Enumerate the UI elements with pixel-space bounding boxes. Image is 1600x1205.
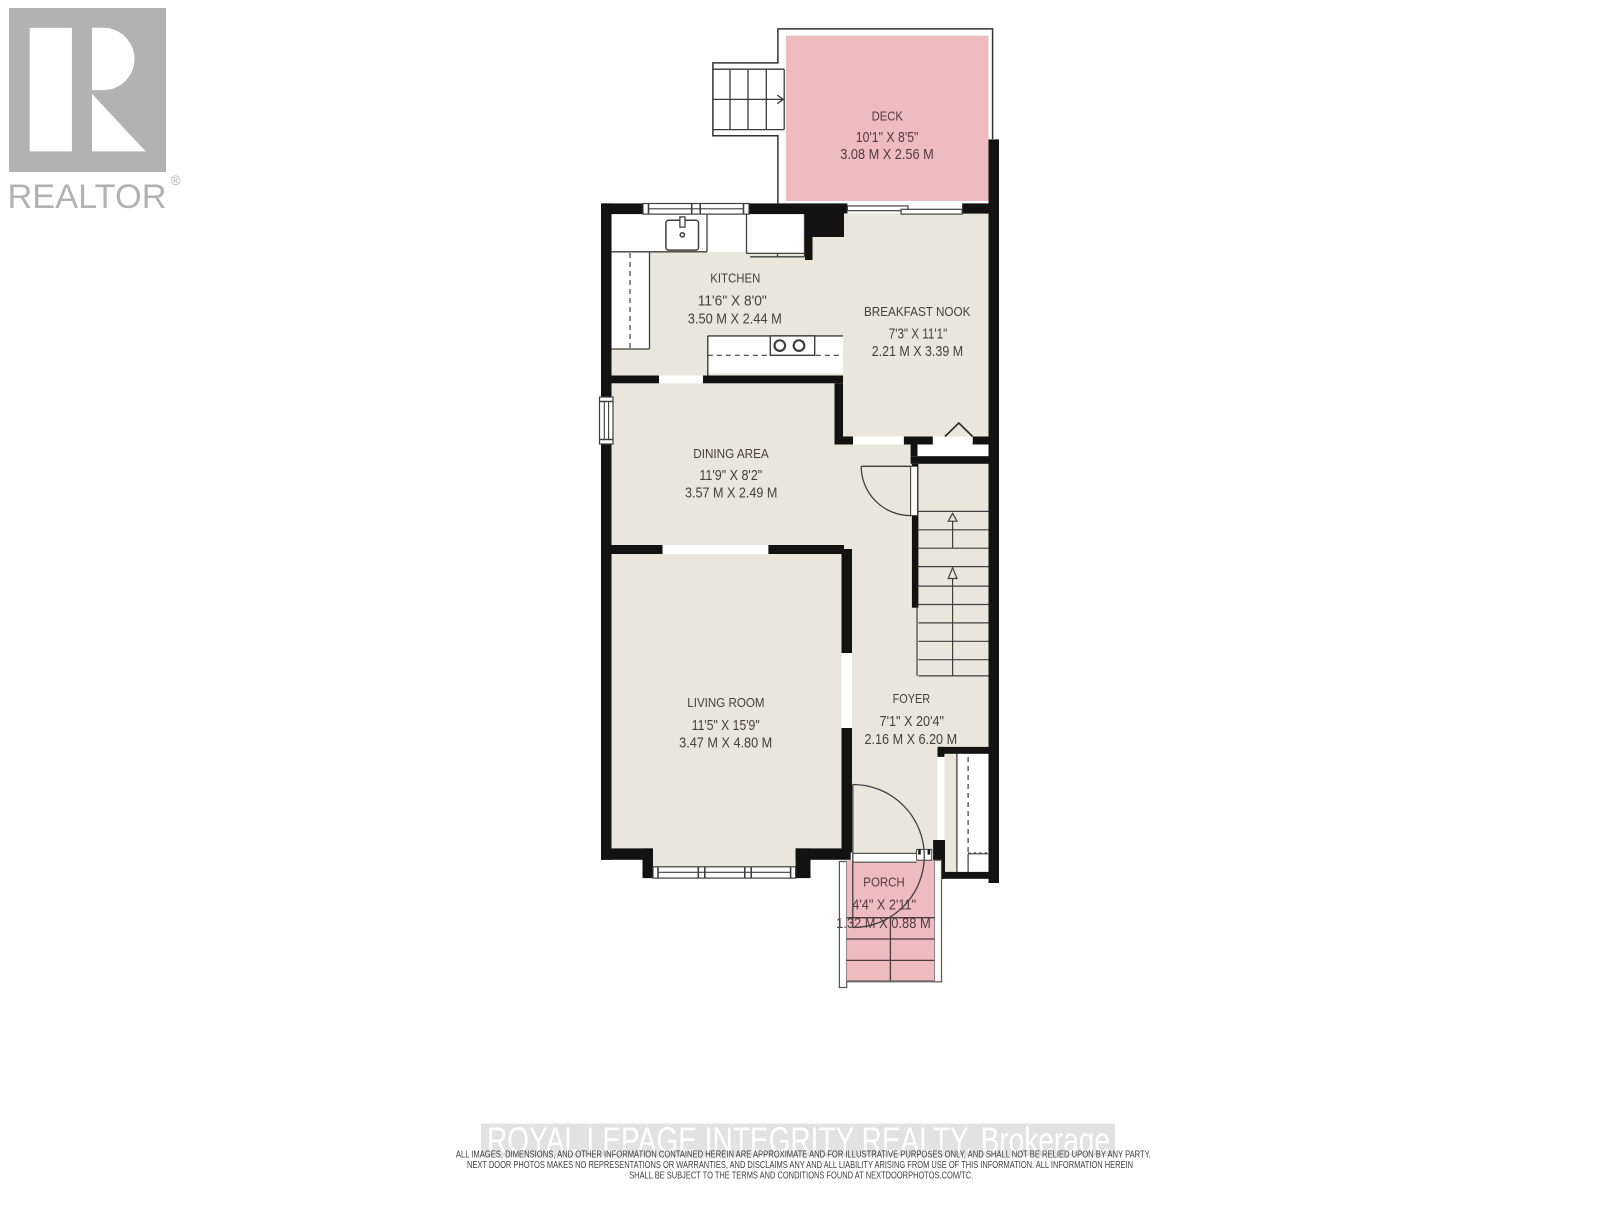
svg-text:BREAKFAST NOOK: BREAKFAST NOOK — [864, 304, 971, 319]
svg-text:NEXT DOOR PHOTOS MAKES NO REPR: NEXT DOOR PHOTOS MAKES NO REPRESENTATION… — [467, 1160, 1133, 1171]
svg-text:2.21 M X 3.39 M: 2.21 M X 3.39 M — [872, 344, 963, 360]
svg-text:KITCHEN: KITCHEN — [710, 270, 760, 285]
svg-text:LIVING ROOM: LIVING ROOM — [687, 695, 764, 710]
svg-text:3.57 M X 2.49 M: 3.57 M X 2.49 M — [685, 486, 777, 502]
svg-text:DINING AREA: DINING AREA — [693, 446, 769, 461]
svg-text:3.47 M X 4.80 M: 3.47 M X 4.80 M — [679, 735, 772, 751]
svg-text:3.50 M X 2.44 M: 3.50 M X 2.44 M — [688, 312, 782, 328]
svg-text:7'3" X 11'1": 7'3" X 11'1" — [889, 327, 948, 343]
svg-text:11'5" X 15'9": 11'5" X 15'9" — [692, 718, 760, 734]
svg-text:11'9" X 8'2": 11'9" X 8'2" — [699, 468, 762, 484]
svg-text:4'4" X 2'11": 4'4" X 2'11" — [852, 897, 916, 913]
svg-text:11'6" X 8'0": 11'6" X 8'0" — [698, 293, 767, 309]
svg-text:10'1" X 8'5": 10'1" X 8'5" — [856, 130, 919, 146]
svg-text:3.08 M X 2.56 M: 3.08 M X 2.56 M — [840, 147, 934, 163]
svg-text:REALTOR: REALTOR — [8, 178, 167, 216]
svg-text:7'1" X 20'4": 7'1" X 20'4" — [880, 714, 945, 730]
svg-text:2.16 M X 6.20 M: 2.16 M X 6.20 M — [865, 732, 958, 748]
svg-text:®: ® — [171, 173, 181, 188]
svg-text:ALL IMAGES, DIMENSIONS, AND OT: ALL IMAGES, DIMENSIONS, AND OTHER INFORM… — [456, 1149, 1151, 1160]
svg-text:1.32 M X 0.88 M: 1.32 M X 0.88 M — [836, 916, 931, 932]
svg-text:FOYER: FOYER — [893, 691, 931, 706]
svg-text:SHALL BE SUBJECT TO THE TERMS: SHALL BE SUBJECT TO THE TERMS AND CONDIT… — [629, 1170, 973, 1181]
svg-text:PORCH: PORCH — [863, 875, 904, 890]
svg-text:DECK: DECK — [872, 108, 904, 123]
